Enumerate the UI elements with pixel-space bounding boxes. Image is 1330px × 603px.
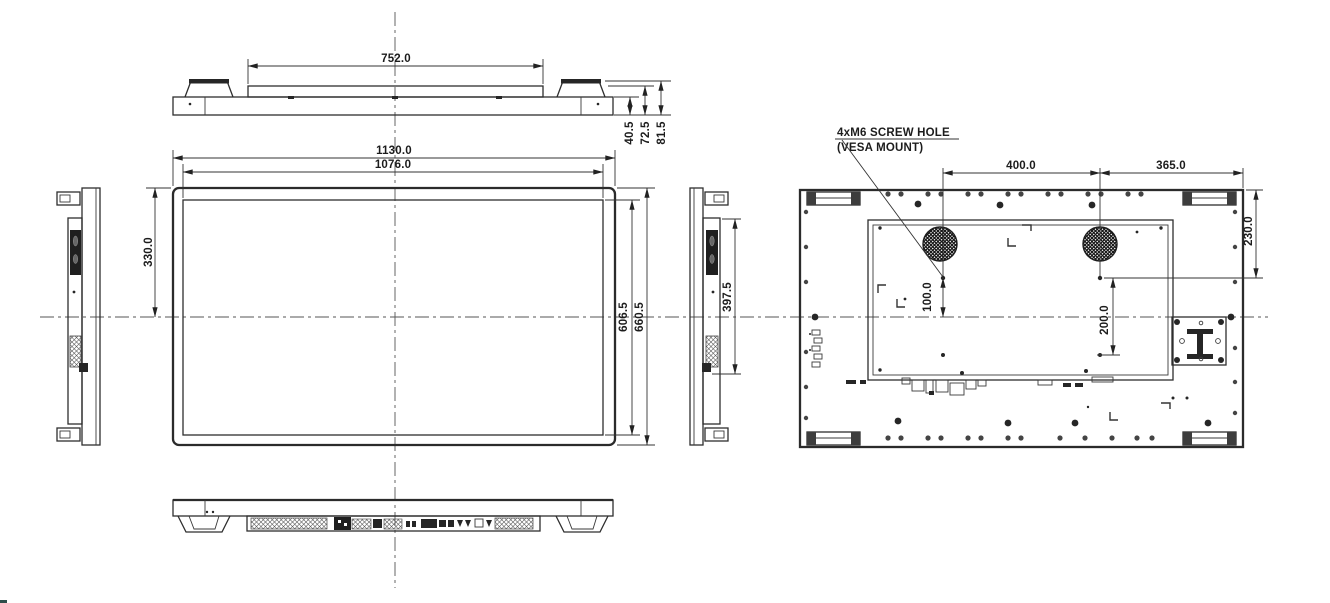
dim-top-to-center: 330.0 [143, 188, 171, 317]
front-view-outer-frame [173, 188, 615, 445]
dimension-drawing-page: 752.0 40.5 72.5 81.5 1130.0 [0, 0, 1330, 603]
bottom-ports [406, 519, 492, 528]
screw-holes [804, 191, 1237, 440]
rear-view-outer-frame [800, 190, 1243, 447]
dim-active-width: 1076.0 [183, 159, 603, 198]
bottom-view [173, 500, 613, 532]
rear-left-connectors [809, 330, 822, 367]
front-view-active-area [183, 200, 603, 435]
dim-vesa-to-edge-value: 365.0 [1156, 160, 1186, 172]
bottom-grille-right [495, 518, 533, 529]
dim-top-to-vesa-value: 230.0 [1243, 216, 1255, 246]
dim-outer-width-value: 1130.0 [376, 145, 412, 157]
bottom-grille-left [251, 518, 327, 529]
rear-view: 4xM6 SCREW HOLE (VESA MOUNT) 400.0 365.0… [800, 127, 1263, 447]
dim-thickness-group: 40.5 72.5 81.5 [605, 81, 671, 145]
left-side-vent-grille [70, 336, 81, 367]
dim-terminal-height-value: 397.5 [722, 282, 734, 312]
vesa-screw-holes [941, 276, 1102, 357]
front-view: 1130.0 1076.0 330.0 606.5 660.5 [143, 145, 655, 445]
rear-handle-bracket [1172, 317, 1226, 365]
dim-vesa-to-center-value: 100.0 [922, 282, 934, 312]
top-view: 752.0 40.5 72.5 81.5 [173, 53, 671, 145]
rear-back-panel [868, 220, 1173, 380]
top-view-rear-bump [248, 86, 543, 97]
left-side-view [57, 188, 100, 445]
dim-heights: 606.5 660.5 [605, 188, 655, 445]
dim-handle-span: 752.0 [248, 53, 543, 84]
right-side-handles [705, 192, 728, 441]
dim-active-width-value: 1076.0 [375, 159, 411, 171]
right-side-view: 397.5 [690, 188, 741, 445]
dim-depth-total-value: 81.5 [656, 121, 668, 145]
dim-vesa-height-value: 200.0 [1099, 305, 1111, 335]
dim-active-height-value: 606.5 [618, 302, 630, 332]
centerlines [40, 12, 1268, 588]
power-switch-block [334, 517, 351, 530]
monitor-dimension-drawing: 752.0 40.5 72.5 81.5 1130.0 [0, 0, 1330, 603]
vesa-note-line1: 4xM6 SCREW HOLE [837, 127, 950, 139]
dim-outer-height-value: 660.5 [634, 302, 646, 332]
dim-depth-front-value: 40.5 [624, 121, 636, 145]
left-side-front-slab [82, 188, 100, 445]
bottom-view-body [173, 500, 613, 516]
dim-top-to-center-value: 330.0 [143, 237, 155, 267]
vesa-note-line2: (VESA MOUNT) [837, 142, 923, 154]
dim-depth-body-value: 72.5 [640, 121, 652, 145]
top-view-body [173, 97, 613, 115]
vesa-leader-line [842, 140, 943, 277]
dim-handle-span-value: 752.0 [381, 53, 411, 65]
rear-vent-cap-left [923, 227, 957, 261]
dim-vesa-width-value: 400.0 [1006, 160, 1036, 172]
right-side-front-slab [690, 188, 703, 445]
right-side-vent-grille [706, 336, 718, 367]
